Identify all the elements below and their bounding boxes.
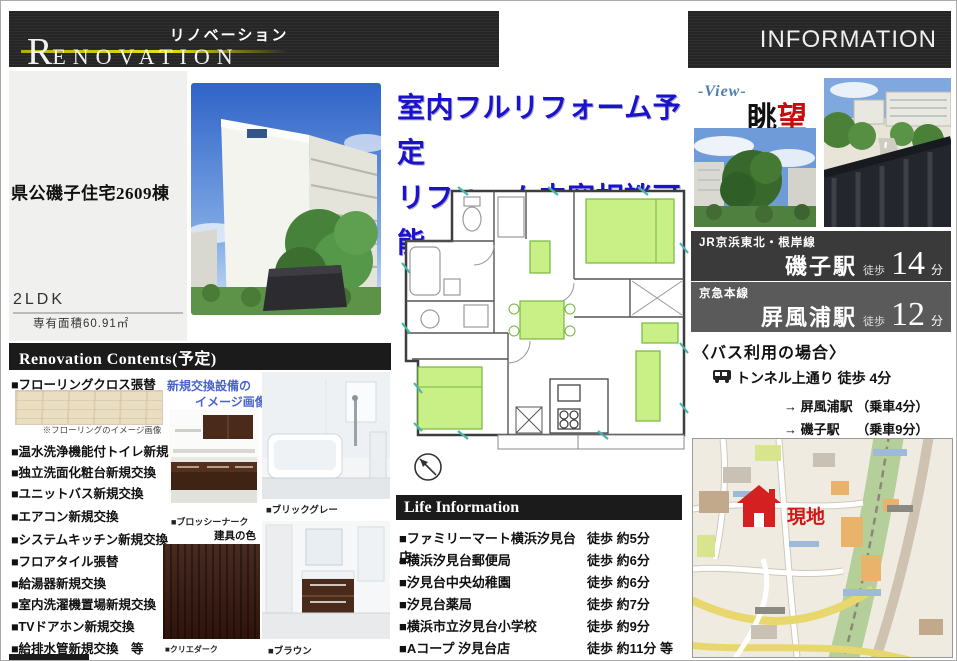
partial-section-bar <box>9 654 89 661</box>
walk-label: 徒歩 <box>863 313 885 329</box>
bus-route-2: → 磯子駅 （乗車9分） <box>784 419 928 438</box>
site-marker-label: 現地 <box>787 505 825 528</box>
area-map: 現地 <box>692 438 953 658</box>
life-title-bar: Life Information <box>396 495 682 520</box>
brand-rest: ENOVATION <box>52 44 239 69</box>
life-row: ■Aコープ 汐見台店 徒歩 約11分 等 <box>399 638 684 657</box>
wood-sample-image <box>163 544 260 639</box>
property-area: 専有面積60.91㎡ <box>33 315 183 331</box>
brand-logo: RENOVATION <box>27 33 240 71</box>
fitting-color-caption: ■クリエダーク <box>165 644 218 655</box>
life-item-name: ■Aコープ 汐見台店 <box>399 638 587 657</box>
minutes-unit: 分 <box>931 312 943 329</box>
flooring-caption: ※フローリングのイメージ画像 <box>41 424 163 436</box>
bath-color-caption: ■ブリックグレー <box>266 502 338 516</box>
bath-photo <box>262 372 390 499</box>
renovation-title: Renovation Contents(予定) <box>9 345 217 369</box>
life-item-time: 徒歩 約11分 等 <box>587 638 684 657</box>
life-row: ■横浜汐見台郵便局 徒歩 約6分 <box>399 550 684 569</box>
station-name: 屏風浦駅 <box>761 300 857 332</box>
walk-minutes: 14 <box>891 247 925 281</box>
renovation-header-bar: リノベーション RENOVATION <box>9 11 499 67</box>
vanity-color-caption: ■ブラウン <box>268 643 312 657</box>
life-item-name: ■横浜市立汐見台小学校 <box>399 616 587 635</box>
information-header-bar: INFORMATION <box>688 11 951 68</box>
train-access-jr: JR京浜東北・根岸線 磯子駅 徒歩 14 分 <box>691 231 951 281</box>
bus-section-title: 〈バス利用の場合〉 <box>693 339 846 363</box>
bus-route-1: → 屏風浦駅 （乗車4分） <box>784 396 928 415</box>
bus-stop-line: トンネル上通り 徒歩 4分 <box>713 368 891 388</box>
life-item-name: ■汐見台中央幼稚園 <box>399 572 587 591</box>
property-layout: 2LDK <box>13 291 183 314</box>
kitchen-color-caption: ■ブロッシーナーク <box>171 515 248 528</box>
train-access-keikyu: 京急本線 屏風浦駅 徒歩 12 分 <box>691 282 951 332</box>
life-row: ■横浜市立汐見台小学校 徒歩 約9分 <box>399 616 684 635</box>
walk-label: 徒歩 <box>863 262 885 278</box>
view-photo-small <box>694 128 816 227</box>
life-item-time: 徒歩 約7分 <box>587 594 684 613</box>
life-row: ■汐見台薬局 徒歩 約7分 <box>399 594 684 613</box>
life-item-name: ■汐見台薬局 <box>399 594 587 613</box>
life-row: ■汐見台中央幼稚園 徒歩 約6分 <box>399 572 684 591</box>
fitting-color-title: 建具の色 <box>214 528 256 543</box>
life-title: Life Information <box>396 499 519 517</box>
building-photo <box>191 83 381 315</box>
equipment-note-line2: イメージ画像 <box>195 393 267 410</box>
brand-initial: R <box>27 31 52 73</box>
renovation-title-bar: Renovation Contents(予定) <box>9 343 391 370</box>
station-name: 磯子駅 <box>785 249 857 281</box>
compass-icon <box>415 454 441 480</box>
view-label-en: -View- <box>698 83 747 101</box>
flyer-page: リノベーション RENOVATION INFORMATION 県公磯子住宅260… <box>0 0 957 661</box>
kitchen-photo <box>169 409 259 503</box>
walk-minutes: 12 <box>891 298 925 332</box>
minutes-unit: 分 <box>931 261 943 278</box>
life-item-time: 徒歩 約6分 <box>587 550 684 569</box>
vanity-photo <box>262 521 390 639</box>
view-photo-large <box>824 78 951 227</box>
life-item-time: 徒歩 約9分 <box>587 616 684 635</box>
life-item-name: ■横浜汐見台郵便局 <box>399 550 587 569</box>
floor-plan <box>398 183 690 487</box>
bus-icon <box>713 370 731 386</box>
flooring-sample-image <box>15 390 163 425</box>
property-name: 県公磯子住宅2609棟 <box>11 179 186 204</box>
equipment-note-line1: 新規交換設備の <box>167 377 251 394</box>
bus-stop-text: トンネル上通り 徒歩 4分 <box>736 368 891 388</box>
life-item-time: 徒歩 約6分 <box>587 572 684 591</box>
headline-line1: 室内フルリフォーム予定 <box>397 85 697 175</box>
information-label: INFORMATION <box>760 26 951 54</box>
